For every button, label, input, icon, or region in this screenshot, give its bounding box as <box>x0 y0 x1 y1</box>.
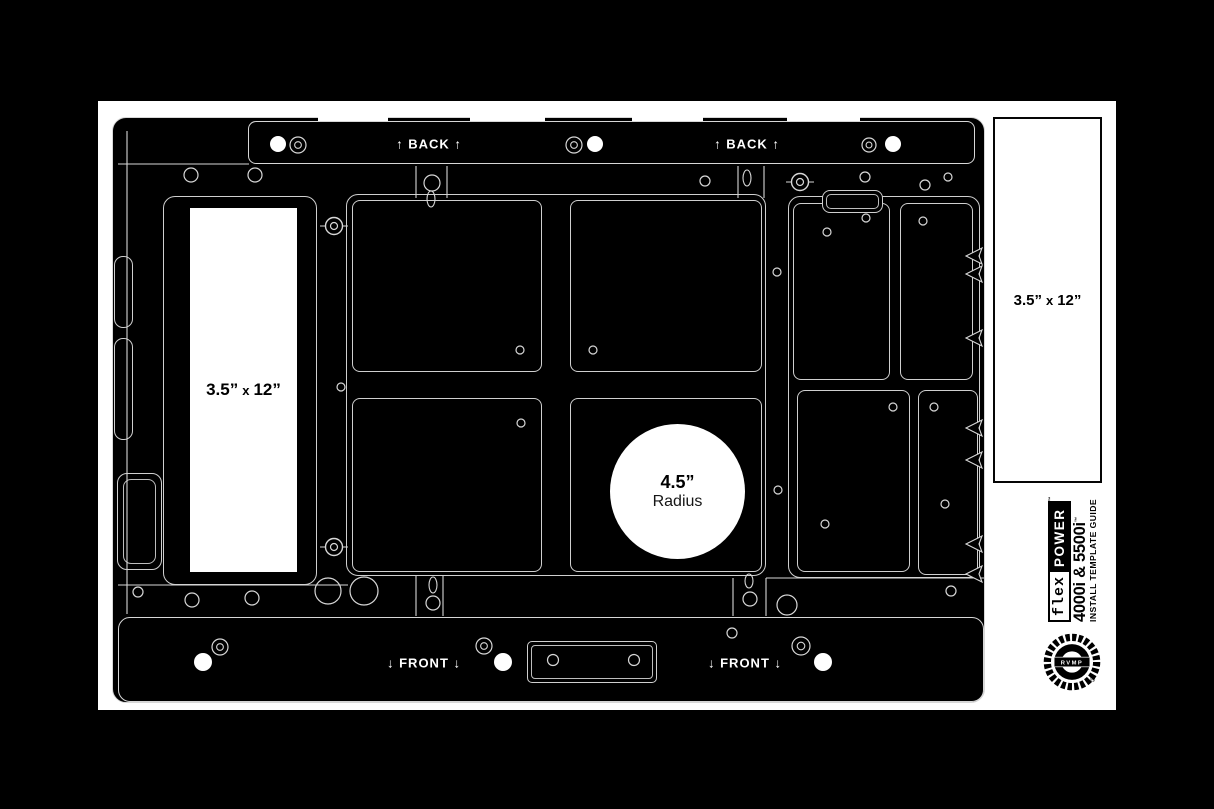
power-wordmark: POWER <box>1050 503 1069 572</box>
back-label-left: ↑ BACK ↑ <box>396 137 462 152</box>
left-slot-cutout: 3.5” x 12” <box>190 208 297 572</box>
dimension-times: x <box>1046 293 1053 308</box>
right-dimension-panel: 3.5” x 12” <box>993 117 1102 483</box>
gear-logo-text: RVMP <box>1061 661 1083 667</box>
dimension-width: 3.5” <box>1014 292 1042 309</box>
front-label-right: ↓ FRONT ↓ <box>708 656 782 671</box>
compartment-right-3 <box>797 390 910 572</box>
trademark-symbol: ™ <box>1048 496 1054 501</box>
compartment-top-right <box>570 200 762 372</box>
compartment-bottom-left <box>352 398 542 572</box>
left-edge-notch-bar <box>114 338 133 440</box>
top-rail <box>248 121 975 164</box>
flex-power-logo: flex POWER <box>1048 501 1071 622</box>
flex-wordmark: flex <box>1050 572 1069 620</box>
compartment-right-4 <box>918 390 978 575</box>
radius-value: 4.5” <box>660 472 694 493</box>
left-edge-notch-bar <box>114 256 133 328</box>
compartment-right-2 <box>900 203 973 380</box>
brand-wordmark: RVMP flex POWER ™ <box>1048 498 1071 622</box>
dimension-height: 12” <box>1057 292 1081 309</box>
dimension-width: 3.5” <box>206 380 238 400</box>
model-name: 4000i & 5500i™ <box>1072 498 1089 622</box>
back-label-right: ↑ BACK ↑ <box>714 137 780 152</box>
left-slot-dimension: 3.5” x 12” <box>206 380 281 400</box>
model-text: 4000i & 5500i <box>1071 522 1089 622</box>
brand-block: RVMP flex POWER ™ 4000i & 5500i™ INSTALL… <box>1048 498 1098 622</box>
dimension-height: 12” <box>253 380 280 400</box>
front-label-left: ↓ FRONT ↓ <box>387 656 461 671</box>
guide-subtitle: INSTALL TEMPLATE GUIDE <box>1089 498 1098 622</box>
right-panel-dimension: 3.5” x 12” <box>1014 292 1082 309</box>
radius-cutout: 4.5” Radius <box>610 424 745 559</box>
radius-word: Radius <box>653 493 703 511</box>
latch-handle-inner <box>826 194 879 209</box>
dimension-times: x <box>242 383 249 398</box>
install-template-page: ↑ BACK ↑ ↑ BACK ↑ 3.5” x 12” 4.5” Radius… <box>0 0 1214 809</box>
registered-symbol: ® <box>1090 677 1095 684</box>
left-pocket-inner <box>123 479 156 564</box>
bottom-center-box-inner <box>531 645 653 679</box>
model-trademark: ™ <box>1074 517 1080 522</box>
compartment-right-1 <box>793 203 890 380</box>
compartment-top-left <box>352 200 542 372</box>
